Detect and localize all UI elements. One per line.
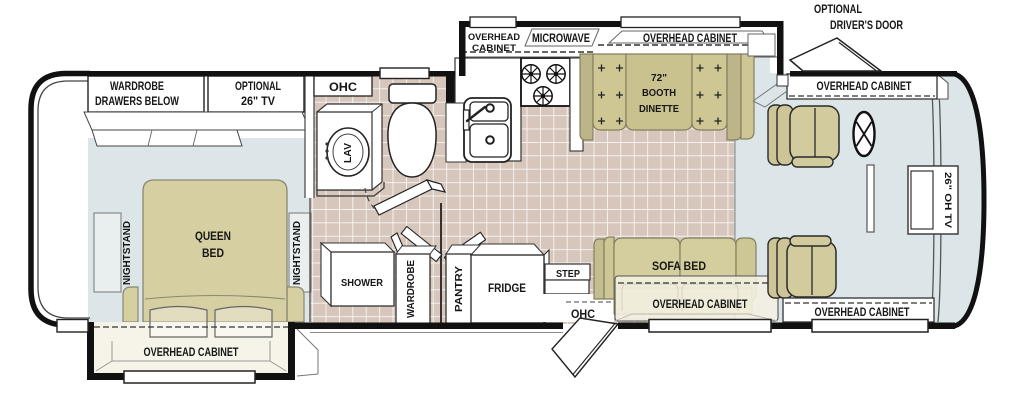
svg-text:SHOWER: SHOWER <box>341 277 383 289</box>
svg-text:NIGHTSTAND: NIGHTSTAND <box>291 221 303 285</box>
svg-text:LAV: LAV <box>342 143 354 163</box>
svg-text:72": 72" <box>651 72 667 84</box>
svg-text:DINETTE: DINETTE <box>639 103 679 115</box>
svg-text:BED: BED <box>202 248 224 260</box>
svg-text:26" OH TV: 26" OH TV <box>942 172 953 229</box>
svg-text:WARDROBE: WARDROBE <box>405 260 417 318</box>
svg-text:WARDROBE: WARDROBE <box>110 81 164 93</box>
svg-text:26" TV: 26" TV <box>241 96 275 108</box>
svg-text:DRIVER'S DOOR: DRIVER'S DOOR <box>830 20 904 32</box>
svg-text:DRAWERS BELOW: DRAWERS BELOW <box>95 96 179 108</box>
svg-text:NIGHTSTAND: NIGHTSTAND <box>121 221 133 285</box>
svg-text:OPTIONAL: OPTIONAL <box>235 81 281 93</box>
svg-text:STEP: STEP <box>556 268 580 280</box>
svg-text:SOFA BED: SOFA BED <box>652 261 706 273</box>
svg-text:OVERHEAD CABINET: OVERHEAD CABINET <box>653 299 748 311</box>
svg-text:PANTRY: PANTRY <box>453 266 465 312</box>
svg-text:CABINET: CABINET <box>472 43 516 54</box>
svg-text:OPTIONAL: OPTIONAL <box>814 4 862 16</box>
svg-text:OVERHEAD CABINET: OVERHEAD CABINET <box>815 307 910 319</box>
svg-text:OVERHEAD CABINET: OVERHEAD CABINET <box>144 347 239 359</box>
svg-text:OHC: OHC <box>329 82 357 94</box>
svg-text:QUEEN: QUEEN <box>195 231 231 243</box>
svg-text:OVERHEAD CABINET: OVERHEAD CABINET <box>643 33 737 45</box>
svg-text:BOOTH: BOOTH <box>642 87 676 99</box>
svg-text:OVERHEAD CABINET: OVERHEAD CABINET <box>817 81 912 93</box>
svg-text:OVERHEAD: OVERHEAD <box>468 32 520 43</box>
svg-text:MICROWAVE: MICROWAVE <box>532 33 590 45</box>
svg-text:FRIDGE: FRIDGE <box>488 283 526 295</box>
